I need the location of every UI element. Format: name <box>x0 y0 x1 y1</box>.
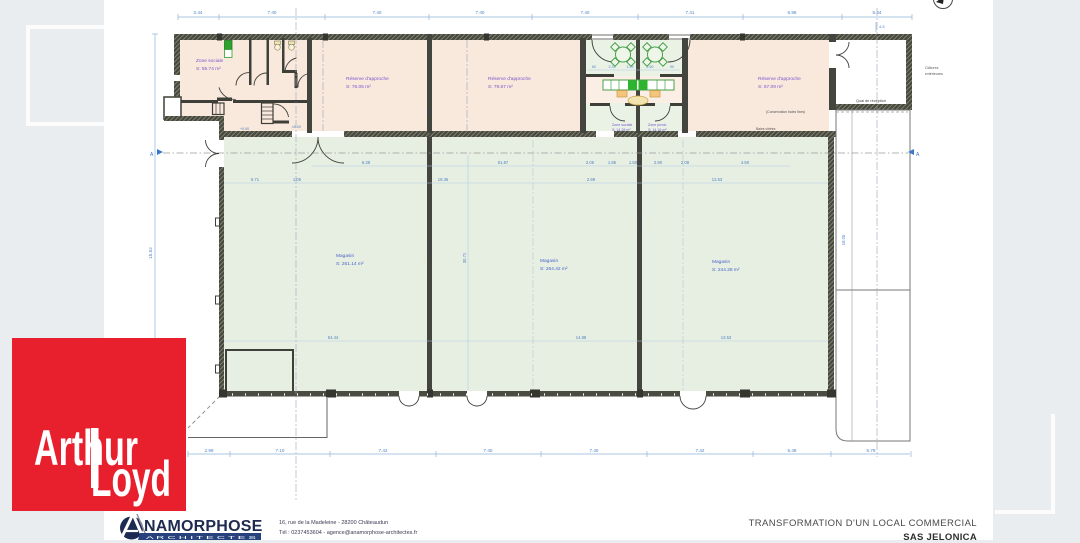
svg-text:2.90: 2.90 <box>654 160 663 165</box>
svg-text:14.88: 14.88 <box>576 335 587 340</box>
svg-text:S: 79.67 m²: S: 79.67 m² <box>488 84 513 90</box>
svg-text:7.42: 7.42 <box>379 448 388 453</box>
svg-text:5.48: 5.48 <box>788 448 797 453</box>
svg-text:S: 264.42 m²: S: 264.42 m² <box>540 266 568 272</box>
svg-text:54.44: 54.44 <box>328 335 339 340</box>
svg-text:7.40: 7.40 <box>484 448 493 453</box>
svg-text:90: 90 <box>670 65 674 69</box>
svg-text:2.44: 2.44 <box>194 10 203 15</box>
svg-text:4.50: 4.50 <box>741 160 750 165</box>
svg-text:7.42: 7.42 <box>696 448 705 453</box>
svg-text:7.40: 7.40 <box>581 10 590 15</box>
svg-text:Zone sociale: Zone sociale <box>196 58 224 64</box>
svg-text:Baie vitrée: Baie vitrée <box>345 133 361 137</box>
svg-text:5.79: 5.79 <box>867 448 876 453</box>
svg-text:Baie vitrée: Baie vitrée <box>489 133 505 137</box>
svg-text:NAMORPHOSE: NAMORPHOSE <box>144 518 263 535</box>
svg-text:SAD: SAD <box>429 108 433 115</box>
svg-text:18.05: 18.05 <box>841 234 846 245</box>
svg-text:61.87: 61.87 <box>498 160 509 165</box>
svg-text:60: 60 <box>592 65 596 69</box>
svg-text:(Conservation baies fixes): (Conservation baies fixes) <box>766 110 805 114</box>
svg-text:13.53: 13.53 <box>721 335 732 340</box>
svg-text:7.10: 7.10 <box>276 448 285 453</box>
svg-text:2.05: 2.05 <box>586 160 595 165</box>
svg-text:SAD CF1h: SAD CF1h <box>639 217 643 232</box>
svg-text:±0.00: ±0.00 <box>292 125 301 129</box>
svg-text:7.40: 7.40 <box>373 10 382 15</box>
svg-text:S: 244.28 m²: S: 244.28 m² <box>712 267 740 273</box>
svg-text:2.08: 2.08 <box>681 160 690 165</box>
svg-text:1.05: 1.05 <box>293 177 302 182</box>
svg-text:Magasin: Magasin <box>336 253 354 259</box>
svg-text:2.50: 2.50 <box>647 65 654 69</box>
svg-text:Réserve d'approche: Réserve d'approche <box>346 76 389 82</box>
svg-text:S: 76.05 m²: S: 76.05 m² <box>346 84 371 90</box>
svg-text:+0.00: +0.00 <box>240 127 249 131</box>
svg-text:6.38: 6.38 <box>362 160 371 165</box>
svg-text:S: 261.14 m²: S: 261.14 m² <box>336 261 364 267</box>
svg-text:S: 14.16 m²: S: 14.16 m² <box>648 128 667 132</box>
svg-text:S: 55.74 m²: S: 55.74 m² <box>196 66 221 72</box>
svg-text:S: 67.09 m²: S: 67.09 m² <box>758 84 783 90</box>
svg-text:Loyd: Loyd <box>91 451 171 507</box>
svg-text:S: 14.28 m²: S: 14.28 m² <box>612 128 631 132</box>
svg-text:1.85: 1.85 <box>608 160 617 165</box>
svg-text:A: A <box>916 152 920 158</box>
svg-text:5.44: 5.44 <box>873 10 882 15</box>
svg-text:Réserve d'approche: Réserve d'approche <box>488 76 531 82</box>
svg-text:7.40: 7.40 <box>476 10 485 15</box>
svg-text:Zone sociale: Zone sociale <box>612 123 632 127</box>
svg-text:7.40: 7.40 <box>268 10 277 15</box>
svg-text:Magasin: Magasin <box>712 259 730 265</box>
svg-text:Clôtures: Clôtures <box>925 66 939 70</box>
svg-text:13.53: 13.53 <box>712 177 723 182</box>
svg-text:19.35: 19.35 <box>438 177 449 182</box>
svg-text:15.52: 15.52 <box>148 247 153 259</box>
svg-text:Zone picnic: Zone picnic <box>648 123 667 127</box>
svg-text:Quai de réception: Quai de réception <box>856 99 886 103</box>
svg-text:2.33: 2.33 <box>609 65 616 69</box>
svg-text:1.29: 1.29 <box>627 65 634 69</box>
svg-text:7.40: 7.40 <box>590 448 599 453</box>
svg-text:2.99: 2.99 <box>205 448 214 453</box>
svg-text:2.99: 2.99 <box>587 177 596 182</box>
svg-text:A: A <box>150 152 154 158</box>
svg-text:A R C H I T E C T E S: A R C H I T E C T E S <box>146 535 256 540</box>
svg-text:1.50: 1.50 <box>629 160 638 165</box>
svg-text:5.71: 5.71 <box>251 177 260 182</box>
svg-text:4.5: 4.5 <box>879 24 885 29</box>
svg-text:Magasin: Magasin <box>540 258 558 264</box>
svg-text:Réserve d'approche: Réserve d'approche <box>758 76 801 82</box>
svg-text:extérieures: extérieures <box>925 72 943 76</box>
svg-text:6.98: 6.98 <box>788 10 797 15</box>
svg-text:30.71: 30.71 <box>462 252 467 263</box>
svg-text:Baies vitrées: Baies vitrées <box>756 127 776 131</box>
svg-text:7.41: 7.41 <box>686 10 695 15</box>
svg-text:SAD CF1h: SAD CF1h <box>429 242 433 257</box>
